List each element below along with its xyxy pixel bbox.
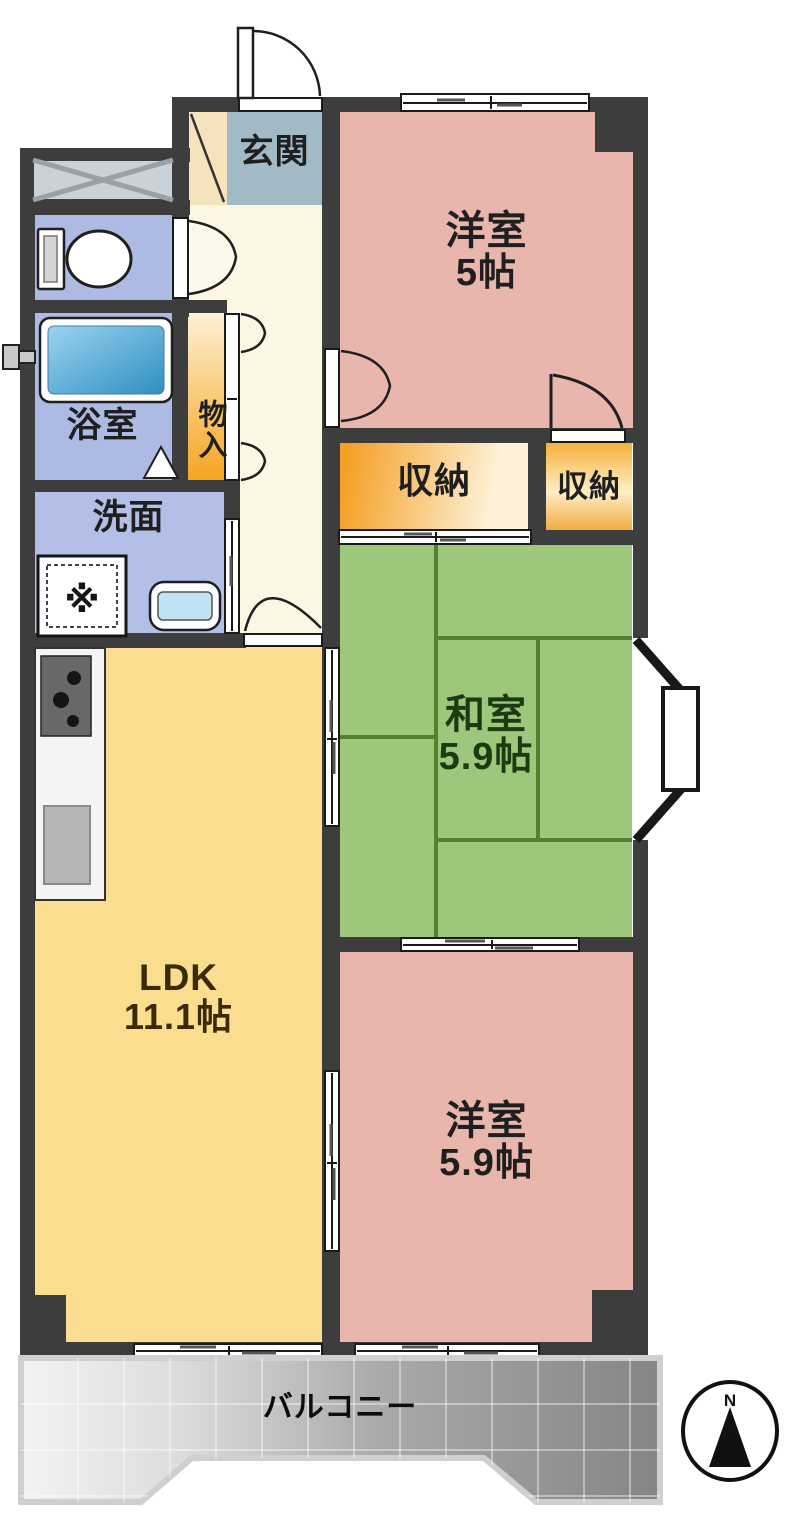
genkan-label: 玄関 — [227, 134, 322, 171]
balcony-label: バルコニー — [238, 1392, 442, 1424]
bathroom-door-mark — [144, 447, 178, 478]
washitsu-name: 和室 — [445, 693, 527, 737]
kitchen-sink-icon — [44, 806, 90, 884]
ldk-label: LDK 11.1帖 — [35, 958, 322, 1037]
bay-window — [636, 640, 698, 840]
washroom-text: 洗面 — [92, 498, 164, 537]
closet-right-text: 収納 — [557, 469, 621, 504]
monoire-text: 物入 — [194, 399, 226, 461]
monoire-label: 物入 — [189, 380, 225, 480]
washing-machine-icon: ※ — [38, 556, 126, 636]
western5-door-arc — [341, 351, 390, 421]
closet-right-door-arc — [551, 374, 622, 428]
ldk-area: 11.1帖 — [35, 998, 322, 1037]
washitsu-area: 5.9帖 — [340, 737, 632, 778]
western5-area: 5帖 — [340, 253, 633, 294]
washitsu-label: 和室 5.9帖 — [340, 694, 632, 778]
washing-machine-symbol: ※ — [65, 579, 100, 620]
genkan-label-text: 玄関 — [240, 133, 310, 171]
closet-right-label: 収納 — [546, 470, 632, 503]
hallway-ldk-door-arc — [245, 598, 321, 631]
compass-icon: N — [683, 1382, 777, 1480]
western5-name: 洋室 — [446, 209, 528, 253]
western5-label: 洋室 5帖 — [340, 210, 633, 294]
bathtub-icon — [3, 318, 172, 402]
closet-left-text: 収納 — [397, 460, 471, 501]
western59-name: 洋室 — [446, 1099, 528, 1143]
western59-label: 洋室 5.9帖 — [340, 1100, 633, 1184]
kitchen-counter-icon — [35, 648, 105, 900]
sink-icon — [150, 582, 220, 630]
toilet-icon — [38, 229, 131, 289]
toilet-door-arc — [189, 221, 236, 294]
ldk-name: LDK — [139, 957, 218, 998]
bathroom-text: 浴室 — [66, 406, 138, 445]
western59-area: 5.9帖 — [340, 1143, 633, 1184]
washroom-label: 洗面 — [33, 499, 224, 537]
meter-box-icon — [33, 160, 173, 200]
balcony-area — [21, 1358, 660, 1502]
bathroom-label: 浴室 — [33, 407, 172, 445]
closet-left-label: 収納 — [338, 462, 530, 501]
monoire-door-arcs — [241, 314, 265, 480]
genkan-step-line — [191, 114, 224, 202]
balcony-text: バルコニー — [263, 1391, 417, 1424]
floor-plan: ※ N — [0, 0, 800, 1529]
entrance-door-arc — [238, 28, 320, 98]
